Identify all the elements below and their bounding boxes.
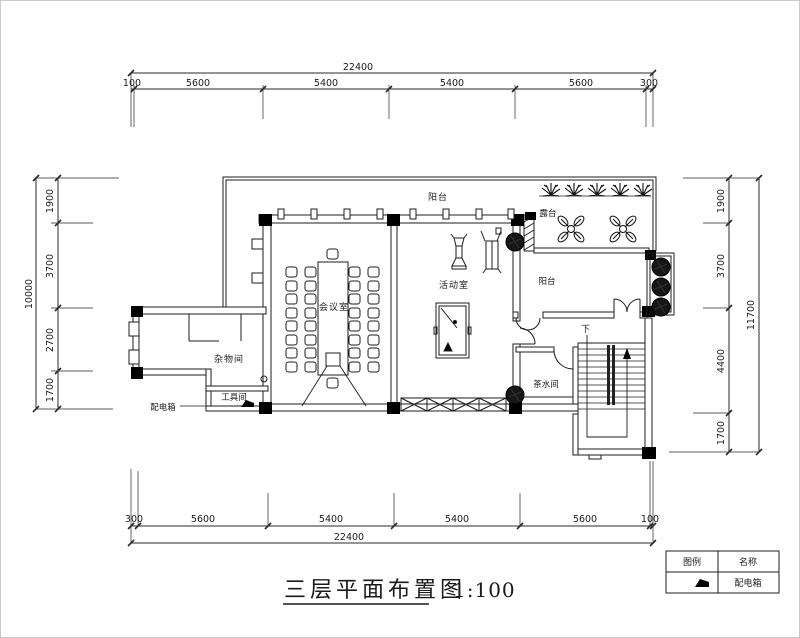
title-block: 三层平面布置图 1:100 [283,578,516,604]
bush-icon [652,298,670,316]
plant-icon [634,183,652,196]
dim-right-seg-1: 3700 [716,254,727,278]
room-label-balcony-right: 阳台 [538,276,555,287]
plant-icon [611,183,629,196]
dim-top-seg-5: 300 [640,78,658,89]
dimension-right-labels: 11700 1900 3700 4400 1700 [716,189,757,445]
room-label-terrace: 露台 [539,208,556,219]
stair-treads [578,349,645,409]
meeting-room [286,249,379,406]
patio-table-icon [608,214,637,243]
dim-top-overall: 22400 [343,62,373,73]
drawing-sheet: 22400 100 5600 5400 5400 5600 300 22400 … [0,0,800,638]
dim-left-seg-3: 1700 [45,378,56,402]
dim-top-seg-0: 100 [123,78,141,89]
bush-icon [652,258,670,276]
dimension-top-labels: 22400 100 5600 5400 5400 5600 300 [123,62,658,89]
dimension-left-labels: 10000 1900 3700 2700 1700 [24,189,56,402]
door-tea-room [554,350,573,369]
projector [326,353,340,366]
patio-table-icon [556,214,585,243]
dim-right-seg-0: 1900 [716,189,727,213]
double-door-balcony [614,299,640,312]
dim-bottom-seg-5: 100 [641,514,659,525]
plant-icon [588,183,606,196]
stair-direction-arrow [623,348,631,359]
stair-rail [612,345,615,405]
dim-right-overall: 11700 [746,300,757,330]
drawing-scale: 1:100 [453,578,516,602]
dim-left-seg-1: 3700 [45,254,56,278]
legend-header-symbol: 图例 [683,556,701,568]
room-label-activity: 活动室 [439,279,469,291]
dim-right-seg-3: 1700 [716,421,727,445]
legend-row-name: 配电箱 [734,577,761,589]
dim-right-seg-2: 4400 [716,349,727,373]
bush-icon [652,278,670,296]
room-label-tool: 工具间 [221,393,247,403]
label-distribution-box: 配电箱 [150,402,176,413]
room-label-balcony-top: 阳台 [428,191,448,203]
plant-icon [565,183,583,196]
drawing-title: 三层平面布置图 [284,578,466,603]
dim-top-seg-3: 5400 [440,78,464,89]
dim-left-overall: 10000 [24,279,35,309]
dim-bottom-seg-4: 5600 [573,514,597,525]
dimension-bottom [128,461,656,546]
dim-top-seg-1: 5600 [186,78,210,89]
dim-bottom-seg-2: 5400 [319,514,343,525]
walls [133,215,652,459]
closet-partitions [189,314,241,341]
dim-top-seg-4: 5600 [569,78,593,89]
dim-bottom-seg-0: 300 [125,514,143,525]
door-activity-hall [520,328,535,344]
fitness-machine-icon [481,228,501,273]
label-stairs-down: 下 [581,325,591,335]
room-label-storage: 杂物间 [214,353,244,365]
room-label-meeting: 会议室 [319,301,349,313]
fitness-machine-icon [451,234,467,269]
dim-left-seg-0: 1900 [45,189,56,213]
dim-bottom-overall: 22400 [334,532,364,543]
legend-header-name: 名称 [739,556,757,568]
legend-table: 图例 名称 配电箱 [666,551,779,593]
dim-bottom-seg-1: 5600 [191,514,215,525]
dim-left-seg-2: 2700 [45,328,56,352]
dim-bottom-seg-3: 5400 [445,514,469,525]
window-marks [129,239,263,364]
plant-icon [542,183,560,196]
cue-stick [441,308,457,328]
room-label-tea: 茶水间 [533,379,559,390]
bush-icon [506,233,524,251]
activity-room [401,228,524,411]
pool-table [434,303,471,358]
stair-rail [607,345,610,405]
dim-top-seg-2: 5400 [314,78,338,89]
bush-icon [506,386,524,404]
staircase [578,335,645,449]
hatched-wall [524,215,534,251]
floor-plan-canvas: 22400 100 5600 5400 5400 5600 300 22400 … [1,1,799,637]
